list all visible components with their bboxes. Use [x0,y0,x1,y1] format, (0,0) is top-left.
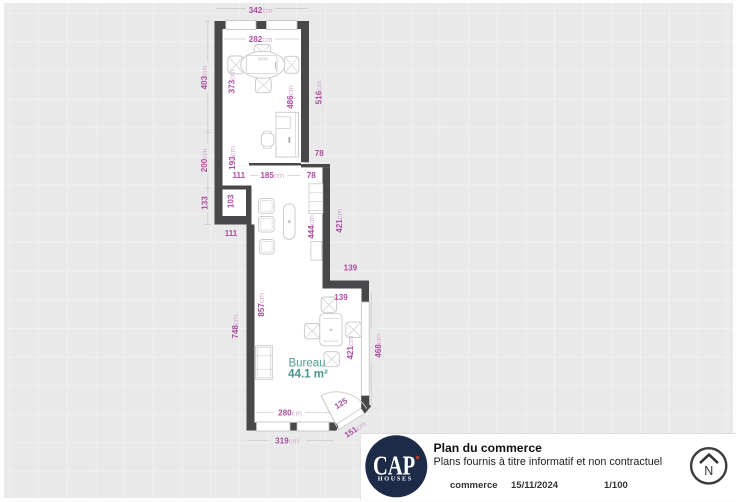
svg-text:N: N [704,464,713,478]
svg-text:HOUSES: HOUSES [378,475,413,482]
